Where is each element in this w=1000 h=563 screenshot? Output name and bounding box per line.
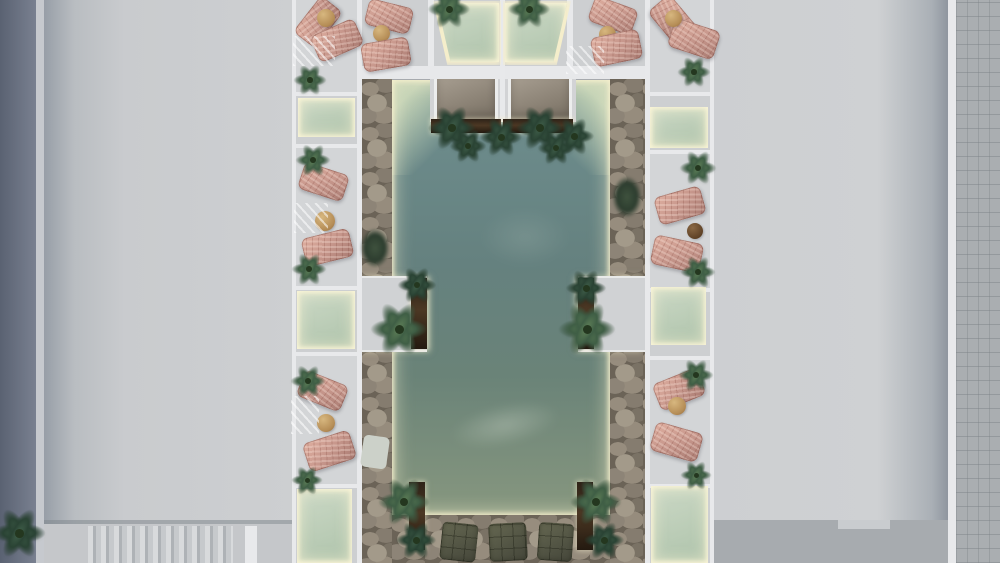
right-building-roof — [712, 0, 948, 520]
white-wall-block — [245, 526, 257, 563]
palm-tree — [678, 148, 718, 188]
palm-tree — [679, 458, 713, 492]
palm-tree — [506, 0, 552, 32]
louver-roof — [88, 526, 233, 563]
palm-tree — [292, 62, 328, 98]
palm-tree — [396, 264, 438, 306]
inner-wall-left — [357, 0, 362, 563]
inner-wall-right — [645, 0, 650, 563]
shrub — [612, 176, 642, 218]
side-table — [317, 414, 335, 432]
palm-tree — [677, 356, 715, 394]
palm-tree — [679, 253, 717, 291]
palm-tree — [426, 0, 472, 32]
palm-tree — [676, 54, 712, 90]
side-table — [665, 10, 682, 27]
palm-tree — [290, 250, 328, 288]
pergola-shadow — [293, 36, 335, 66]
palm-tree — [294, 141, 332, 179]
palm-tree — [394, 518, 438, 562]
side-table — [317, 9, 335, 27]
side-table — [687, 223, 703, 239]
plunge-pool — [298, 98, 355, 137]
plunge-pool — [650, 107, 708, 148]
right-curb — [948, 0, 956, 563]
shrub — [360, 228, 390, 268]
plunge-pool — [651, 486, 708, 563]
pergola-shadow — [566, 46, 604, 74]
pergola-shadow — [291, 396, 319, 434]
side-table — [668, 397, 686, 415]
street-tree — [0, 504, 48, 562]
seat-cushion — [439, 521, 479, 563]
patio-wall — [296, 352, 357, 356]
pergola-shadow — [294, 203, 328, 233]
plunge-pool — [651, 287, 706, 345]
palm-tree — [448, 126, 488, 166]
deck-chair — [360, 434, 390, 469]
plunge-pool — [297, 291, 355, 349]
palm-tree — [536, 128, 576, 168]
paver-sidewalk — [956, 0, 1000, 563]
palm-tree — [564, 266, 608, 310]
right-ground — [712, 520, 948, 563]
left-curb — [36, 0, 44, 563]
plunge-pool — [297, 489, 352, 563]
palm-tree — [289, 362, 327, 400]
palm-tree — [290, 463, 324, 497]
left-building-roof — [44, 0, 295, 563]
seat-cushion — [488, 522, 528, 562]
palm-tree — [368, 298, 430, 360]
scene — [0, 0, 1000, 563]
street-strip-left — [0, 0, 38, 563]
palm-tree — [582, 518, 626, 562]
patio-wall — [649, 92, 710, 96]
right-roof-step — [838, 520, 890, 529]
